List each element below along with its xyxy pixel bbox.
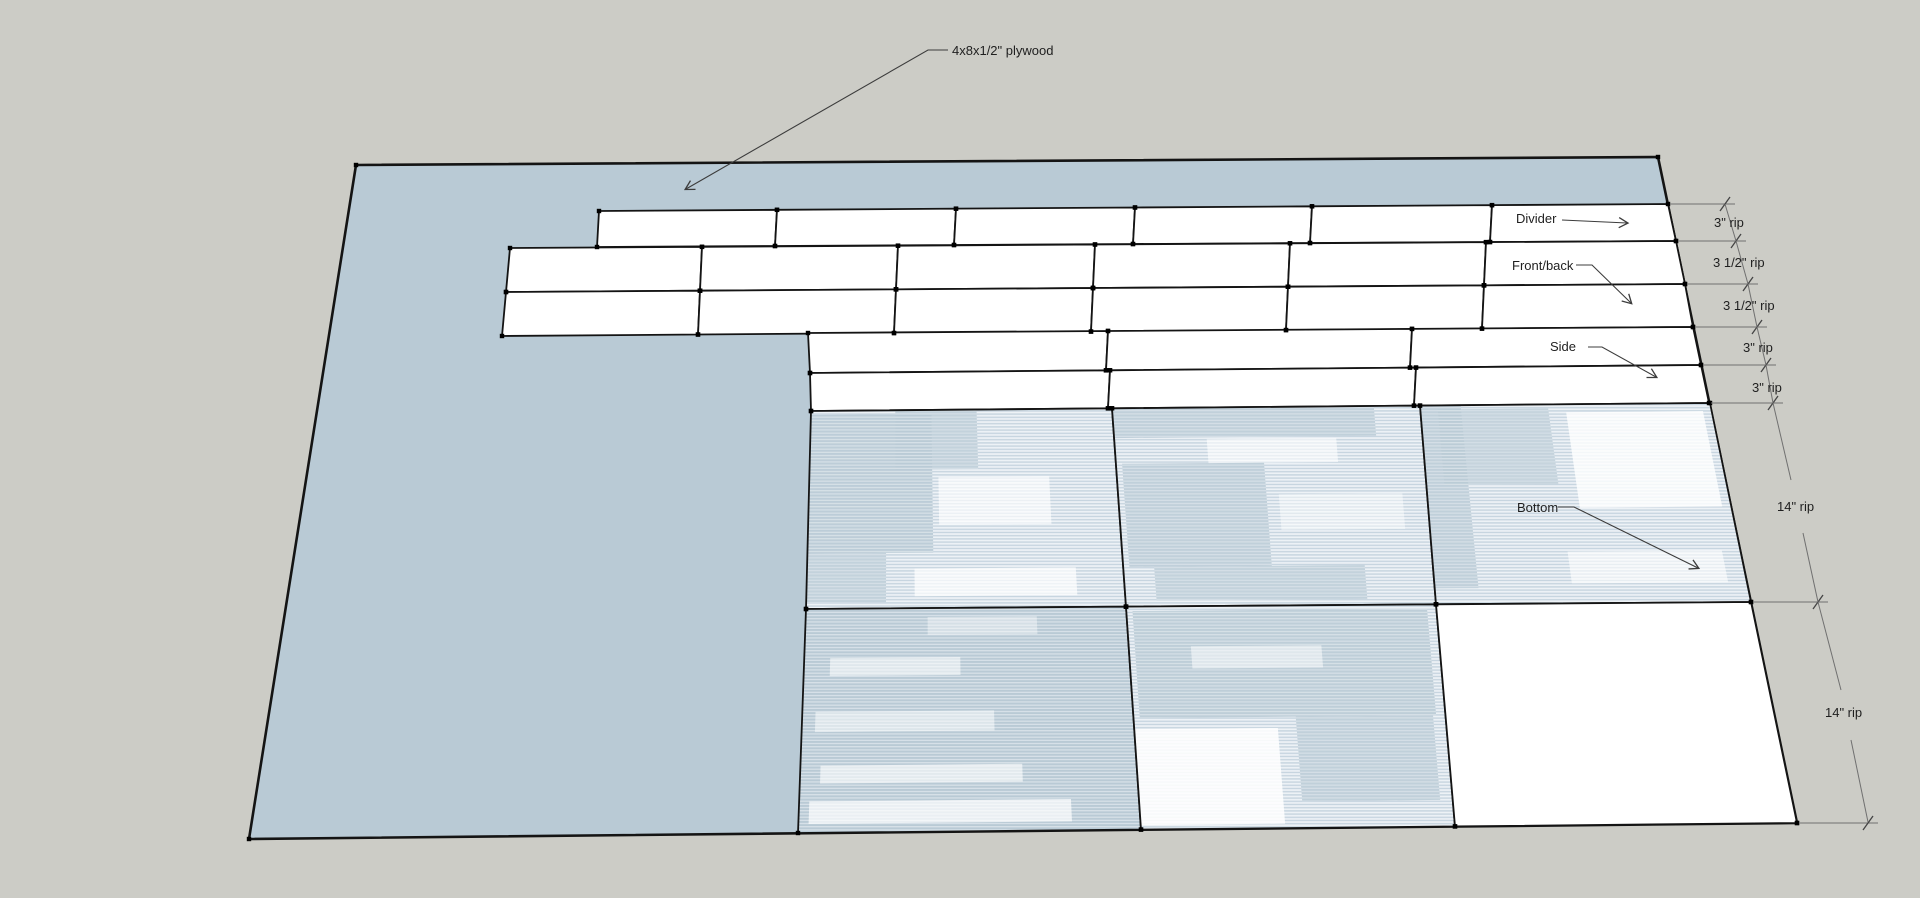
dim-label-rip-3[interactable]: 3 1/2" rip [1723, 298, 1775, 313]
texture-patch [809, 799, 1072, 824]
texture-patch [1134, 728, 1285, 825]
dim-label-rip-6[interactable]: 14" rip [1777, 499, 1814, 514]
bottom-panel[interactable] [798, 607, 1141, 833]
texture-patch [938, 476, 1051, 524]
cut-piece[interactable] [1482, 284, 1693, 329]
sheet-geometry [247, 155, 1878, 841]
texture-patch [1154, 565, 1367, 600]
texture-patch [815, 710, 995, 732]
cut-piece[interactable] [894, 288, 1093, 333]
cut-piece[interactable] [700, 246, 898, 291]
bottom-panel[interactable] [806, 408, 1126, 609]
cut-piece[interactable] [1108, 368, 1416, 409]
dim-label-rip-5[interactable]: 3" rip [1752, 380, 1782, 395]
cut-piece[interactable] [597, 210, 777, 247]
cut-piece[interactable] [954, 207, 1135, 245]
texture-patch [1207, 438, 1338, 463]
bottom-panel[interactable] [1420, 403, 1751, 604]
cut-piece[interactable] [1288, 242, 1486, 287]
cut-piece[interactable] [506, 247, 702, 292]
model-viewport: 4x8x1/2" plywood Divider Front/back Side… [0, 0, 1920, 898]
texture-patch [830, 657, 961, 676]
texture-patch [1568, 550, 1729, 583]
label-bottom[interactable]: Bottom [1517, 500, 1558, 515]
bottom-panel[interactable] [1112, 406, 1436, 607]
cut-piece[interactable] [810, 370, 1110, 411]
texture-patch [1279, 493, 1405, 530]
dim-label-rip-1[interactable]: 3" rip [1714, 215, 1744, 230]
cut-piece[interactable] [1091, 287, 1288, 332]
cut-piece[interactable] [1133, 206, 1312, 244]
texture-patch [1566, 411, 1722, 508]
texture-patch [806, 553, 886, 603]
label-divider[interactable]: Divider [1516, 211, 1557, 226]
texture-patch [1122, 463, 1272, 567]
dim-label-rip-2[interactable]: 3 1/2" rip [1713, 255, 1765, 270]
dim-label-rip-4[interactable]: 3" rip [1743, 340, 1773, 355]
texture-patch [1112, 406, 1376, 438]
label-front-back[interactable]: Front/back [1512, 258, 1574, 273]
cut-piece[interactable] [808, 331, 1108, 373]
bottom-panel[interactable] [1126, 604, 1455, 829]
cut-piece[interactable] [1106, 329, 1412, 370]
texture-patch [1438, 408, 1559, 485]
cut-piece[interactable] [698, 289, 896, 334]
cut-piece[interactable] [1310, 205, 1492, 243]
sheet-label[interactable]: 4x8x1/2" plywood [952, 43, 1053, 58]
plywood-cut-diagram: 4x8x1/2" plywood Divider Front/back Side… [0, 0, 1920, 898]
texture-patch [820, 764, 1023, 784]
cut-piece[interactable] [1414, 365, 1709, 406]
texture-patch [915, 567, 1078, 596]
texture-patch [928, 616, 1038, 635]
cut-piece[interactable] [896, 244, 1095, 289]
cut-piece[interactable] [1286, 285, 1484, 330]
texture-patch [895, 410, 978, 470]
dim-label-rip-7[interactable]: 14" rip [1825, 705, 1862, 720]
cut-piece[interactable] [1093, 243, 1290, 288]
cut-piece[interactable] [502, 291, 700, 336]
cut-piece[interactable] [775, 209, 956, 246]
bottom-panel[interactable] [1436, 602, 1797, 826]
texture-patch [1191, 645, 1323, 668]
label-side[interactable]: Side [1550, 339, 1576, 354]
texture-patch [1296, 715, 1440, 801]
